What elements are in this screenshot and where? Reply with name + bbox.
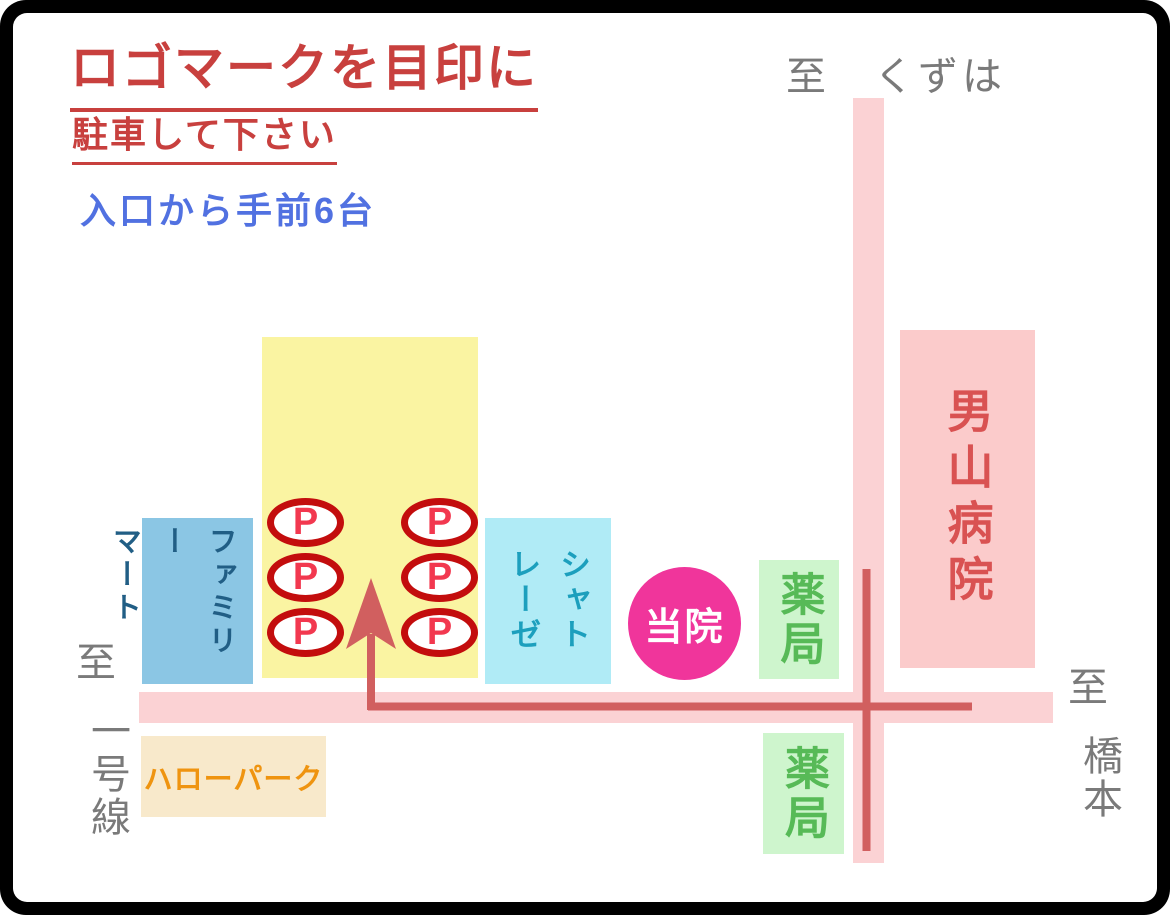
parking-spot-label: P <box>293 613 318 651</box>
parking-spot: P <box>267 498 344 547</box>
parking-spot-label: P <box>293 558 318 596</box>
road-east-west <box>139 692 1053 723</box>
map-frame: ロゴマークを目印に 駐車して下さい 入口から手前6台 至 くずは 至 一号線 至… <box>0 0 1170 915</box>
direction-west-dest-label: 一号線 <box>78 710 136 839</box>
convenience-store-box: ファミリー マート <box>142 518 253 684</box>
parking-spot-label: P <box>427 558 452 596</box>
parking-spot-label: P <box>427 613 452 651</box>
parking-spot: P <box>401 498 478 547</box>
hospital-label: 男山病院 <box>935 387 1001 611</box>
parking-note: 入口から手前6台 <box>80 182 376 234</box>
convenience-store-label-col1: ファミリー <box>147 526 243 684</box>
parking-spot: P <box>267 553 344 602</box>
parking-spot: P <box>401 553 478 602</box>
parking-spot-label: P <box>293 503 318 541</box>
clinic-label: 当院 <box>644 596 724 651</box>
page-title: ロゴマークを目印に <box>70 28 538 112</box>
parking-spot: P <box>267 608 344 657</box>
map-layer: ロゴマークを目印に 駐車して下さい 入口から手前6台 至 くずは 至 一号線 至… <box>0 0 1170 915</box>
hello-park-label: ハローパーク <box>144 756 324 798</box>
sweets-shop-label-col2: レーゼ <box>498 548 548 684</box>
direction-east-dest-label: 橋本 <box>1070 735 1128 821</box>
sweets-shop-box: シャト レーゼ <box>485 518 611 684</box>
direction-east-to-label: 至 <box>1068 655 1108 713</box>
page-subtitle: 駐車して下さい <box>72 106 337 165</box>
direction-north-label: 至 くずは <box>786 44 1006 102</box>
hello-park-box: ハローパーク <box>141 736 326 817</box>
hospital-box: 男山病院 <box>900 330 1035 668</box>
parking-spot-label: P <box>427 503 452 541</box>
pharmacy-south-box: 薬局 <box>763 733 844 854</box>
pharmacy-north-box: 薬局 <box>759 560 839 679</box>
pharmacy-north-label: 薬局 <box>767 571 832 669</box>
clinic-marker: 当院 <box>628 567 741 680</box>
road-north-south <box>853 98 884 863</box>
convenience-store-label-col2: マート <box>99 526 147 684</box>
parking-spot: P <box>401 608 478 657</box>
sweets-shop-label-col1: シャト <box>547 548 597 684</box>
pharmacy-south-label: 薬局 <box>771 745 836 843</box>
